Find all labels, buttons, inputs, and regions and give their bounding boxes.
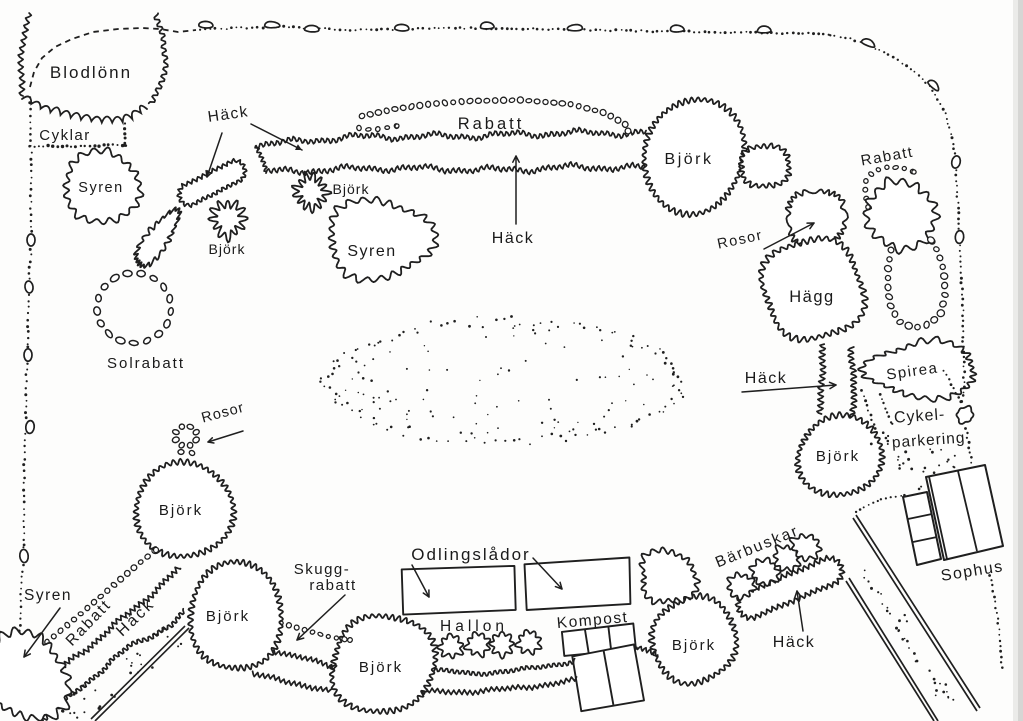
svg-text:Björk: Björk [665,151,714,168]
svg-text:Blodlönn: Blodlönn [50,63,132,82]
svg-text:Häck: Häck [745,370,787,387]
svg-text:Björk: Björk [672,637,716,654]
svg-text:Häck: Häck [492,230,534,247]
svg-text:Björk: Björk [159,502,203,519]
svg-text:Björk: Björk [209,241,246,257]
svg-text:Syren: Syren [24,587,72,604]
svg-text:Björk: Björk [333,181,370,197]
svg-text:Solrabatt: Solrabatt [107,355,185,372]
svg-text:Skugg-: Skugg- [294,561,351,578]
svg-text:Björk: Björk [816,448,860,465]
svg-text:Hägg: Hägg [789,288,834,306]
svg-text:Häck: Häck [773,634,815,651]
svg-text:Syren: Syren [347,243,396,260]
svg-text:rabatt: rabatt [309,577,356,594]
svg-text:Cykel-: Cykel- [893,406,945,427]
svg-text:Rabatt: Rabatt [458,115,525,133]
svg-text:Odlingslådor: Odlingslådor [411,545,530,564]
svg-text:Cyklar: Cyklar [39,127,91,144]
svg-text:Björk: Björk [206,608,250,625]
svg-text:Syren: Syren [78,180,123,196]
svg-text:Björk: Björk [359,659,403,676]
